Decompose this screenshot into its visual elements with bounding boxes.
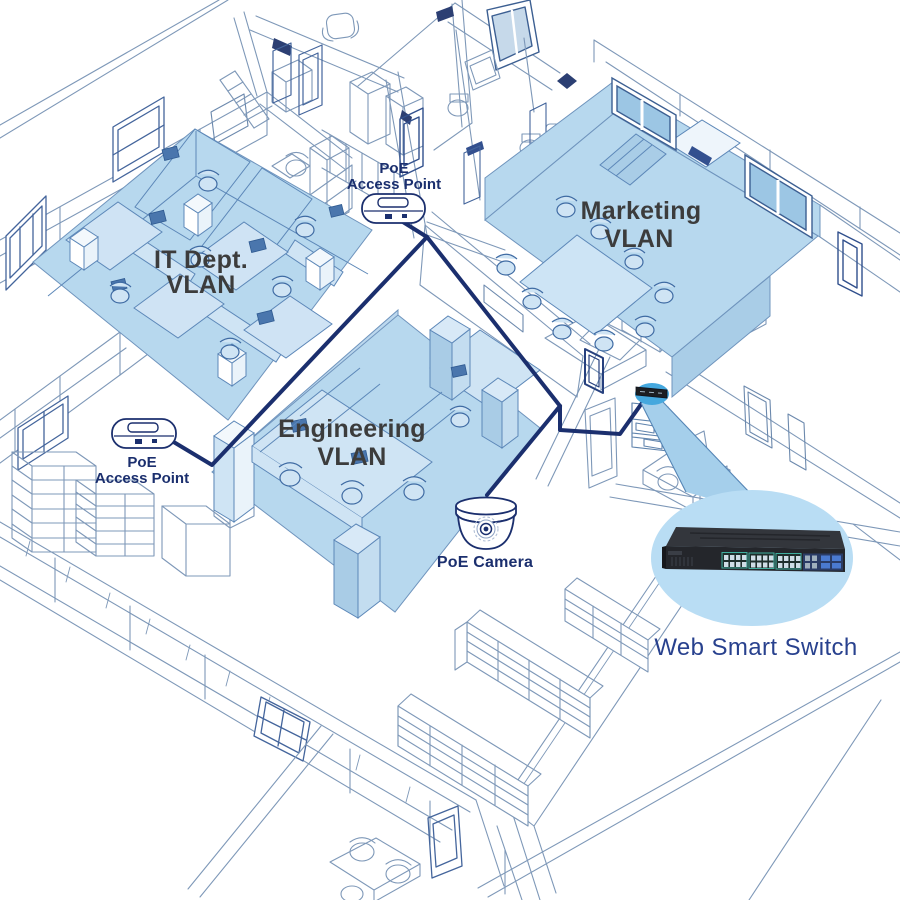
svg-text:VLAN: VLAN [166,271,235,299]
svg-text:PoE: PoE [379,160,408,177]
svg-text:IT Dept.: IT Dept. [154,246,248,274]
svg-text:Marketing: Marketing [581,197,702,225]
svg-text:PoE Camera: PoE Camera [437,554,533,571]
svg-text:PoE: PoE [127,454,156,471]
svg-text:Access Point: Access Point [95,470,189,487]
svg-text:VLAN: VLAN [604,225,673,253]
svg-text:Access Point: Access Point [347,176,441,193]
svg-text:Web Smart Switch: Web Smart Switch [654,634,857,661]
svg-text:Engineering: Engineering [278,415,426,443]
svg-text:VLAN: VLAN [317,443,386,471]
